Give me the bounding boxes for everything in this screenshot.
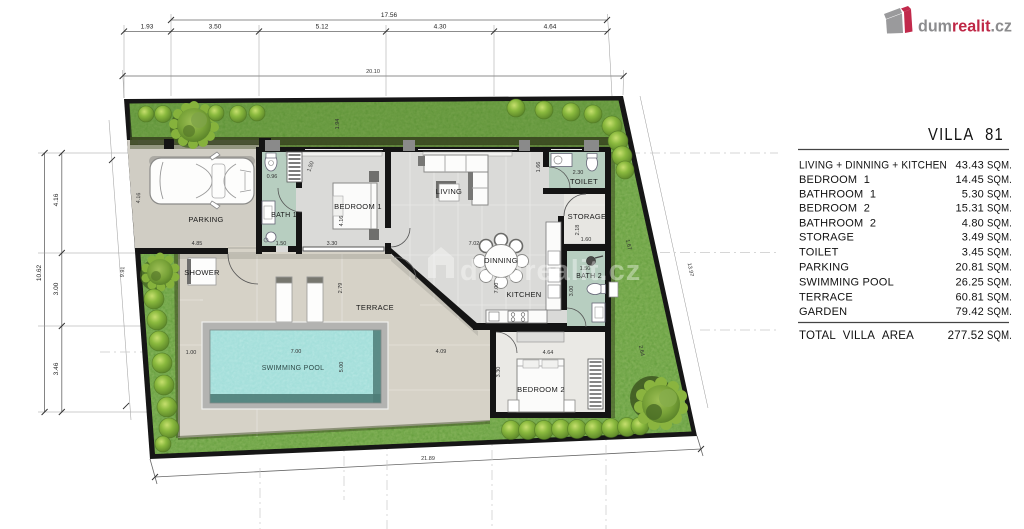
svg-text:14.45: 14.45 bbox=[955, 174, 984, 186]
svg-text:BEDROOM 2: BEDROOM 2 bbox=[517, 385, 565, 394]
svg-text:9.91: 9.91 bbox=[120, 266, 127, 277]
svg-text:STORAGE: STORAGE bbox=[568, 212, 607, 221]
svg-text:dumrealit.cz: dumrealit.cz bbox=[460, 255, 641, 287]
svg-text:5.12: 5.12 bbox=[316, 24, 329, 31]
svg-text:3.50: 3.50 bbox=[209, 24, 222, 31]
svg-text:GARDEN: GARDEN bbox=[799, 306, 847, 318]
svg-text:2.18: 2.18 bbox=[575, 225, 581, 236]
svg-text:277.52: 277.52 bbox=[948, 330, 984, 342]
svg-text:7.00: 7.00 bbox=[291, 349, 302, 355]
svg-text:BATH 1: BATH 1 bbox=[271, 212, 297, 219]
svg-text:SQM.: SQM. bbox=[987, 247, 1012, 259]
svg-text:3.00: 3.00 bbox=[53, 282, 60, 295]
svg-text:BEDROOM 2: BEDROOM 2 bbox=[799, 203, 870, 215]
svg-text:20.81: 20.81 bbox=[955, 261, 984, 273]
svg-text:1.94: 1.94 bbox=[335, 119, 341, 130]
svg-text:4.30: 4.30 bbox=[434, 24, 447, 31]
svg-text:SQM.: SQM. bbox=[987, 160, 1012, 172]
svg-text:SQM.: SQM. bbox=[987, 277, 1012, 289]
svg-text:60.81: 60.81 bbox=[955, 291, 984, 303]
svg-text:TERRACE: TERRACE bbox=[356, 303, 394, 312]
svg-text:1.50: 1.50 bbox=[276, 241, 287, 247]
svg-text:15.31: 15.31 bbox=[955, 203, 984, 215]
svg-text:5.00: 5.00 bbox=[339, 362, 345, 373]
svg-text:LIVING + DINNING + KITCHEN: LIVING + DINNING + KITCHEN bbox=[799, 160, 947, 172]
svg-text:5.30: 5.30 bbox=[962, 189, 984, 201]
svg-text:BEDROOM 1: BEDROOM 1 bbox=[799, 174, 870, 186]
svg-text:1.00: 1.00 bbox=[186, 350, 197, 356]
svg-text:20.10: 20.10 bbox=[366, 69, 380, 75]
svg-text:1.60: 1.60 bbox=[581, 237, 592, 243]
svg-text:43.43: 43.43 bbox=[955, 160, 984, 172]
svg-text:SQM.: SQM. bbox=[987, 189, 1012, 201]
svg-text:SQM.: SQM. bbox=[987, 330, 1012, 342]
svg-text:SQM.: SQM. bbox=[987, 261, 1012, 273]
svg-text:4.16: 4.16 bbox=[53, 193, 60, 206]
svg-text:1.93: 1.93 bbox=[141, 24, 154, 31]
svg-text:TOILET: TOILET bbox=[570, 177, 598, 186]
svg-text:SWIMMING POOL: SWIMMING POOL bbox=[262, 365, 325, 372]
svg-text:7.02: 7.02 bbox=[469, 241, 480, 247]
svg-text:2.30: 2.30 bbox=[573, 170, 584, 176]
svg-text:SQM.: SQM. bbox=[987, 203, 1012, 215]
svg-text:SQM.: SQM. bbox=[987, 232, 1012, 244]
svg-text:13.97: 13.97 bbox=[686, 262, 695, 277]
svg-text:4.64: 4.64 bbox=[544, 24, 557, 31]
svg-text:PARKING: PARKING bbox=[799, 261, 849, 273]
svg-text:1.66: 1.66 bbox=[536, 162, 542, 173]
svg-text:21.89: 21.89 bbox=[421, 456, 435, 462]
svg-text:SQM.: SQM. bbox=[987, 306, 1012, 318]
svg-text:26.25: 26.25 bbox=[955, 277, 984, 289]
svg-text:4.80: 4.80 bbox=[962, 218, 984, 230]
svg-text:4.09: 4.09 bbox=[436, 349, 447, 355]
svg-text:10.62: 10.62 bbox=[36, 264, 43, 281]
svg-text:dumrealit.cz: dumrealit.cz bbox=[918, 18, 1012, 36]
svg-text:3.49: 3.49 bbox=[962, 232, 984, 244]
svg-text:TOILET: TOILET bbox=[799, 247, 839, 259]
svg-text:BEDROOM 1: BEDROOM 1 bbox=[334, 202, 382, 211]
svg-text:0.96: 0.96 bbox=[267, 174, 278, 180]
svg-text:17.56: 17.56 bbox=[381, 12, 398, 19]
svg-text:SQM.: SQM. bbox=[987, 174, 1012, 186]
svg-text:LIVING: LIVING bbox=[436, 187, 462, 196]
svg-text:3.45: 3.45 bbox=[962, 247, 984, 259]
svg-text:4.85: 4.85 bbox=[192, 241, 203, 247]
svg-text:SQM.: SQM. bbox=[987, 291, 1012, 303]
svg-text:4.16: 4.16 bbox=[136, 192, 143, 203]
svg-text:KITCHEN: KITCHEN bbox=[506, 290, 541, 299]
svg-text:3.30: 3.30 bbox=[327, 241, 338, 247]
svg-text:SWIMMING POOL: SWIMMING POOL bbox=[799, 277, 894, 289]
svg-text:PARKING: PARKING bbox=[188, 215, 223, 224]
svg-text:3.30: 3.30 bbox=[496, 367, 502, 378]
svg-text:BATHROOM 1: BATHROOM 1 bbox=[799, 189, 876, 201]
svg-text:BATHROOM 2: BATHROOM 2 bbox=[799, 218, 876, 230]
svg-text:4.64: 4.64 bbox=[543, 350, 554, 356]
svg-text:4.16: 4.16 bbox=[339, 216, 345, 227]
svg-text:TERRACE: TERRACE bbox=[799, 291, 853, 303]
svg-text:2.79: 2.79 bbox=[338, 283, 344, 294]
svg-text:3.00: 3.00 bbox=[569, 286, 575, 297]
svg-text:VILLA 81: VILLA 81 bbox=[928, 124, 1004, 144]
svg-text:STORAGE: STORAGE bbox=[799, 232, 854, 244]
svg-text:SHOWER: SHOWER bbox=[184, 268, 220, 277]
svg-text:TOTAL VILLA AREA: TOTAL VILLA AREA bbox=[799, 330, 914, 342]
svg-text:SQM.: SQM. bbox=[987, 218, 1012, 230]
svg-text:79.42: 79.42 bbox=[955, 306, 984, 318]
svg-text:3.46: 3.46 bbox=[53, 362, 60, 375]
